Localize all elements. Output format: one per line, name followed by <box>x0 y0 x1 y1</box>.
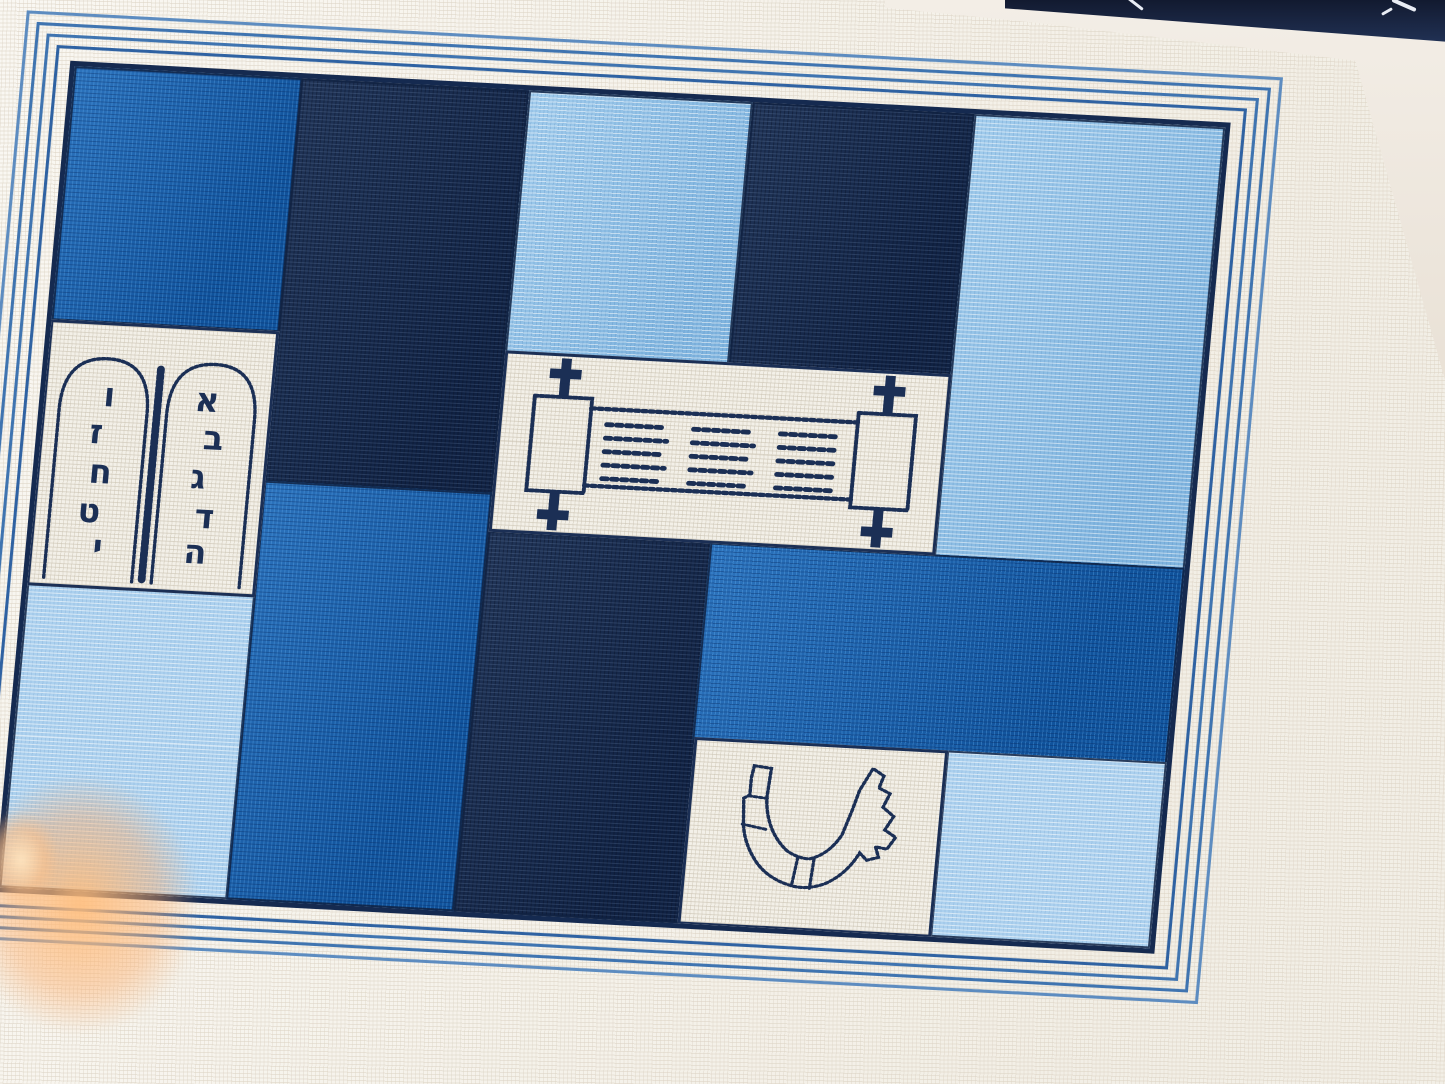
patch-royal-bar-right <box>693 543 1185 764</box>
patch-royal-top-left <box>51 66 302 333</box>
ten-commandments-icon: ו ז ח ט י א ב ג ד ה <box>29 322 276 594</box>
white-stitch-mark <box>1126 0 1144 11</box>
white-stitch-mark <box>1381 7 1393 16</box>
hebrew-letter: ה <box>182 531 208 571</box>
tablets-panel: ו ז ח ט י א ב ג ד ה <box>27 319 279 597</box>
hebrew-letter: ג <box>189 457 207 497</box>
patch-royal-col2-bottom <box>226 480 492 911</box>
torah-left-roller <box>526 396 592 494</box>
torah-panel <box>489 351 952 556</box>
patch-navy-col2-top <box>264 78 529 494</box>
hebrew-letter: ב <box>202 418 226 458</box>
patch-powder-bottom-right <box>930 750 1167 948</box>
hebrew-letter: ד <box>193 496 216 536</box>
shofar-panel <box>677 737 948 937</box>
shofar-icon <box>680 740 945 935</box>
hebrew-letter: ט <box>76 490 102 530</box>
hebrew-letter: ז <box>88 412 105 452</box>
patch-light-col3-top <box>505 90 752 364</box>
patch-navy-col4-top <box>728 102 974 376</box>
hebrew-letter: ו <box>102 375 117 415</box>
white-stitch-mark <box>1391 0 1416 12</box>
hebrew-letter: י <box>91 527 104 567</box>
hebrew-letter: ח <box>87 451 113 491</box>
torah-finials <box>536 358 907 549</box>
torah-scroll-icon <box>492 354 948 553</box>
torah-right-roller <box>850 413 916 511</box>
parchment-top-edge <box>591 408 858 422</box>
patch-light-right-column <box>934 114 1226 571</box>
tablet-divider <box>141 369 161 582</box>
torah-text-lines <box>602 425 840 491</box>
hebrew-letter: א <box>193 380 221 420</box>
photograph: ו ז ח ט י א ב ג ד ה <box>0 0 1445 1084</box>
patch-navy-center-bottom <box>454 530 713 923</box>
